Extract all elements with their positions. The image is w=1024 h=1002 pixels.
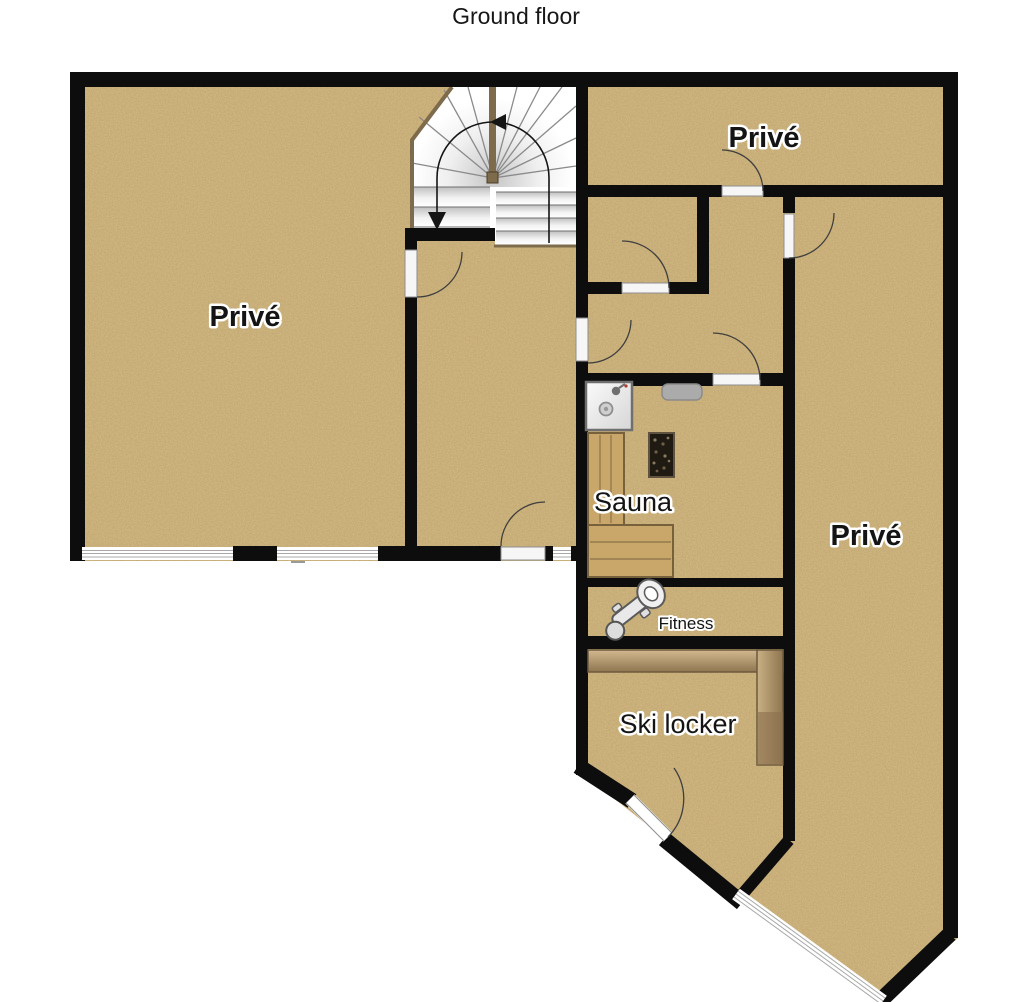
floor-plan-page: Ground floor Privé Privé Privé Sauna Fit… [0,0,1024,1002]
wall-top-prive-bottom [763,185,943,197]
room-label-prive-left: Privé [210,301,281,333]
room-label-ski-locker: Ski locker [619,709,736,739]
wall-bench-icon [662,384,702,400]
wall-outer-left [70,72,85,561]
window [82,547,233,560]
wall-segment [545,546,553,561]
window [277,547,378,562]
wall-small-room-bottom [588,282,622,294]
wall-outer-right [943,72,958,938]
wall-mid-left-upper [576,87,588,318]
stair-divider [489,87,496,182]
sauna-stove-icon [649,433,674,477]
stair-hub-post [487,172,498,183]
staircase [412,87,576,246]
stair-flight-right [496,192,576,245]
room-label-fitness: Fitness [659,614,714,633]
window [553,547,571,560]
shower-head-icon [612,387,620,395]
wall-prive-left-divider [405,297,417,546]
room-label-prive-top-right: Privé [729,122,800,154]
wall-right-prive-left [783,197,795,213]
wall-segment [233,546,277,561]
wall-sauna-top [760,373,795,386]
wall-right-prive-left [783,258,795,841]
stair-flight-left [412,187,490,227]
shower-icon [586,382,632,430]
wall-stairs-bottom [405,228,495,241]
wall-segment [70,546,82,561]
wall-sauna-bottom [588,578,783,587]
page-title: Ground floor [452,3,580,29]
wall-segment [378,546,501,561]
room-label-sauna: Sauna [594,487,673,517]
wall-prive-left-divider [405,241,417,250]
wall-top-prive-bottom [588,185,722,197]
room-label-prive-right: Privé [831,520,902,552]
wall-small-room-right [697,197,709,288]
wall-small-room-bottom [669,282,709,294]
floor-plan: Ground floor Privé Privé Privé Sauna Fit… [0,0,1024,1002]
wall-outer-top [70,72,958,87]
